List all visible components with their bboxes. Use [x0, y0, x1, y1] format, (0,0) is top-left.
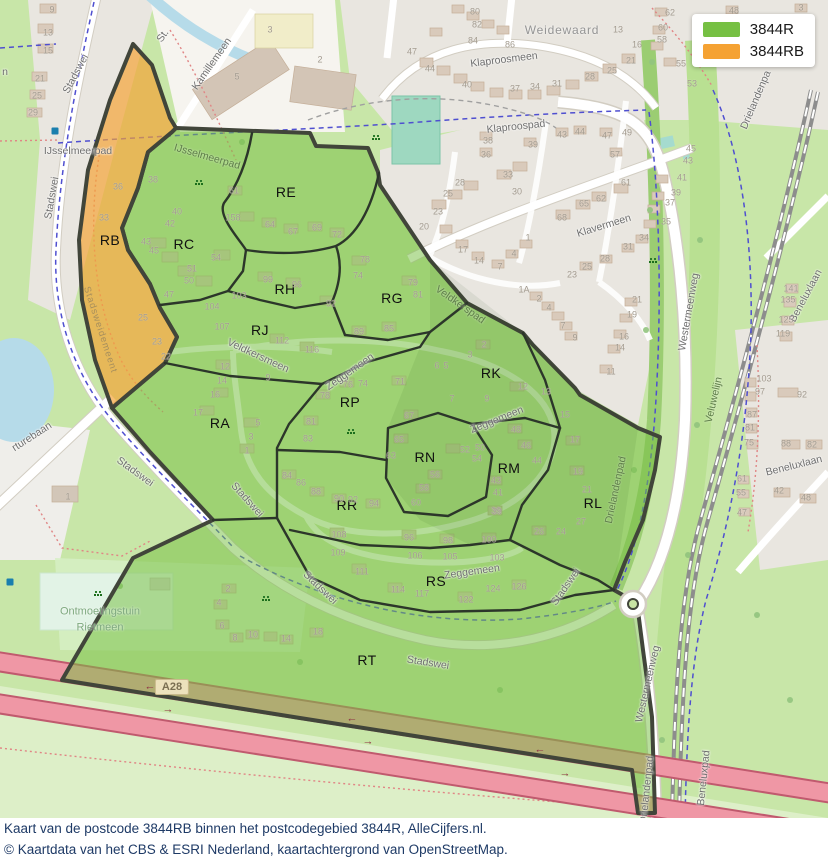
legend-row-3844rb: 3844RB	[703, 43, 804, 60]
legend-label-3844rb: 3844RB	[750, 43, 804, 60]
caption: Kaart van de postcode 3844RB binnen het …	[0, 818, 828, 861]
map-container[interactable]: RBRCRERHRGRJRKRARPRNRMRLRRRSRTStadsweiSt…	[0, 0, 828, 818]
legend-row-3844r: 3844R	[703, 21, 804, 38]
legend-swatch-orange	[703, 44, 740, 59]
legend-swatch-green	[703, 22, 740, 37]
map-canvas	[0, 0, 828, 818]
screenshot: RBRCRERHRGRJRKRARPRNRMRLRRRSRTStadsweiSt…	[0, 0, 828, 861]
caption-line-1: Kaart van de postcode 3844RB binnen het …	[4, 819, 828, 839]
map-legend: 3844R 3844RB	[692, 14, 815, 67]
a28-route-badge: A28	[155, 679, 189, 695]
legend-label-3844r: 3844R	[750, 21, 794, 38]
roundabout	[620, 591, 646, 617]
caption-line-2: © Kaartdata van het CBS & ESRI Nederland…	[4, 840, 828, 860]
